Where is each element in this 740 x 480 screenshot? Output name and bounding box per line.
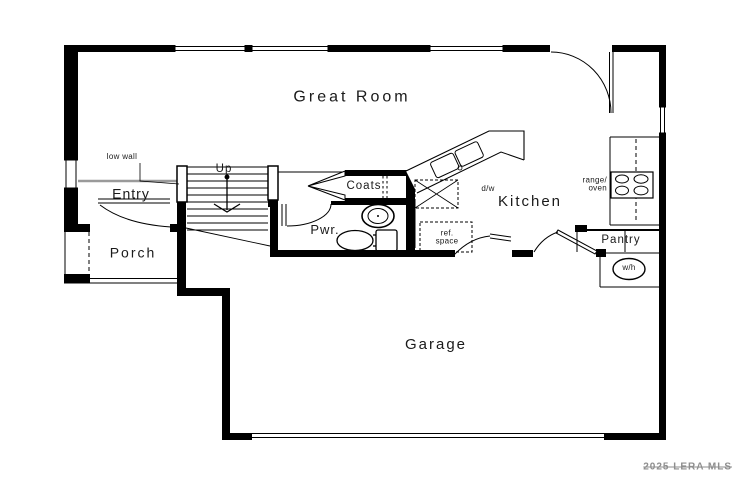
front-door <box>98 199 171 227</box>
window-top-1 <box>175 45 245 52</box>
windows <box>64 45 666 188</box>
room-label-pwr: Pwr. <box>310 223 339 237</box>
toilet <box>337 230 397 251</box>
window-top-3 <box>430 45 503 52</box>
pantry-door <box>534 230 597 254</box>
wall-pwr-top-stub <box>331 201 345 205</box>
pwr-fixtures <box>337 205 397 252</box>
pwr-sink <box>362 205 394 228</box>
annotation-ref-space: ref. space <box>436 230 459 247</box>
room-label-coats: Coats <box>346 180 381 192</box>
newel-right <box>268 166 278 200</box>
wall-garage-left <box>222 288 230 440</box>
annotation-wh: w/h <box>622 264 635 272</box>
wall-left <box>64 45 78 232</box>
closet-rod <box>383 176 387 198</box>
kitchen-counter-angled <box>406 131 524 193</box>
wall-garage-bottom-left <box>222 433 252 440</box>
window-left <box>64 160 78 188</box>
patio-door <box>550 45 613 113</box>
garage-door <box>252 434 604 438</box>
window-right <box>659 107 666 133</box>
wall-entry-south-left <box>64 224 90 232</box>
mls-watermark: 2025 LERA MLS <box>643 462 732 473</box>
annotation-ref-space-line2: space <box>436 238 459 246</box>
wall-bottom-stub <box>512 250 533 257</box>
room-label-garage: Garage <box>405 337 467 353</box>
room-label-porch: Porch <box>110 246 157 261</box>
wall-coats-top <box>345 170 415 176</box>
annotation-low-wall: low wall <box>107 153 137 161</box>
window-top-2 <box>252 45 328 52</box>
range-burners <box>611 172 653 198</box>
annotation-range-oven: range/ oven <box>583 177 607 194</box>
wall-right <box>659 45 666 440</box>
annotation-range-oven-line2: oven <box>583 185 607 193</box>
porch-post <box>64 274 90 283</box>
annotation-dw: d/w <box>481 185 494 193</box>
room-label-great-room: Great Room <box>293 90 410 107</box>
kitchen-counter-right <box>610 137 659 225</box>
room-label-pantry: Pantry <box>601 234 640 246</box>
wall-pwr-kitchen-bottom <box>270 250 455 257</box>
staircase <box>177 166 278 246</box>
doors <box>98 45 613 255</box>
annotation-up: Up <box>216 163 233 175</box>
wall-pwr-left <box>270 200 278 257</box>
understair-line <box>186 228 270 246</box>
room-label-kitchen: Kitchen <box>498 194 562 210</box>
floor-plan: Great Room Entry Porch Kitchen Garage Pw… <box>0 0 740 480</box>
wall-garage-bottom-right <box>604 433 666 440</box>
dishwasher <box>415 180 458 208</box>
room-label-entry: Entry <box>112 187 150 202</box>
wall-stair-side <box>177 200 186 296</box>
coats-door <box>308 171 345 200</box>
